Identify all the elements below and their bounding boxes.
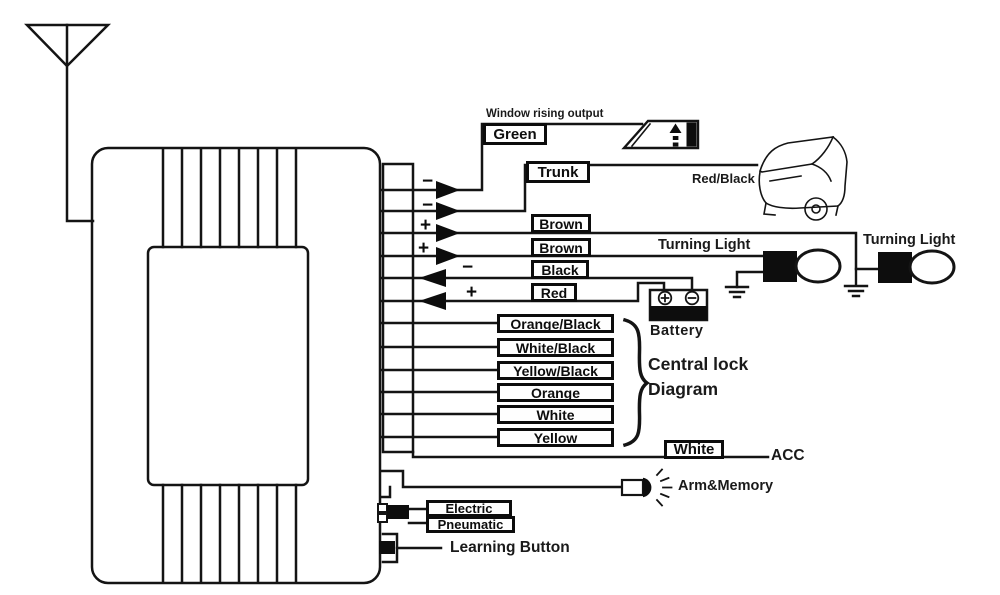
tag-white: White	[497, 405, 614, 424]
tag-brown1: Brown	[531, 214, 591, 233]
tag-white-black: White/Black	[497, 338, 614, 357]
tag-yellow-black: Yellow/Black	[497, 361, 614, 380]
polarity-black: −	[462, 258, 473, 277]
ground-icon-right	[845, 269, 867, 296]
battery-icon	[650, 290, 707, 320]
turn-light-bulb-icon-left	[763, 250, 840, 282]
turning-light-left-label: Turning Light	[658, 238, 750, 253]
car-open-trunk-icon	[759, 137, 847, 220]
central-lock-label-line2: Diagram	[648, 381, 718, 399]
wire-arm-memory	[381, 471, 622, 497]
learning-button-icon	[379, 534, 397, 562]
arrow-right-green	[436, 181, 460, 199]
polarity-green: −	[422, 172, 433, 191]
central-lock-brace	[625, 320, 647, 445]
acc-label: ACC	[771, 448, 805, 464]
main-unit	[92, 148, 380, 583]
arm-memory-label: Arm&Memory	[678, 479, 773, 494]
polarity-brown2: +	[418, 239, 429, 258]
tag-red: Red	[531, 283, 577, 302]
wire-ground-left-link	[737, 272, 763, 287]
indicator-lamp-icon	[622, 470, 672, 506]
red-black-label: Red/Black	[692, 172, 755, 185]
arrow-right-trunk	[436, 202, 460, 220]
tag-trunk: Trunk	[526, 161, 590, 183]
tag-orange-black: Orange/Black	[497, 314, 614, 333]
tag-orange: Orange	[497, 383, 614, 402]
arrow-right-brown2	[436, 247, 460, 265]
wiring-diagram: − − + + − + Green Trunk Brown Brown Blac…	[0, 0, 1000, 595]
tag-green: Green	[483, 123, 547, 145]
connector-block	[383, 164, 413, 452]
turn-light-bulb-icon-right	[878, 251, 954, 283]
wire-red	[381, 283, 664, 301]
polarity-trunk: −	[422, 196, 433, 215]
electric-pneumatic-connector	[378, 504, 409, 522]
arrow-right-brown1	[436, 224, 460, 242]
tag-black: Black	[531, 260, 589, 279]
polarity-red: +	[466, 283, 477, 302]
arrow-left-red	[419, 292, 446, 310]
tag-yellow: Yellow	[497, 428, 614, 447]
central-lock-label-line1: Central lock	[648, 356, 748, 374]
tag-electric: Electric	[426, 500, 512, 517]
arrow-left-black	[419, 269, 446, 287]
learning-button-label: Learning Button	[450, 540, 570, 556]
tag-pneumatic: Pneumatic	[426, 516, 515, 533]
ground-icon-left	[726, 287, 748, 297]
tag-white-acc: White	[664, 440, 724, 459]
antenna-icon	[27, 25, 108, 221]
battery-label: Battery	[650, 324, 703, 339]
polarity-brown1: +	[420, 216, 431, 235]
window-rising-note: Window rising output	[486, 109, 603, 121]
tag-brown2: Brown	[531, 238, 591, 257]
turning-light-right-label: Turning Light	[863, 233, 955, 248]
